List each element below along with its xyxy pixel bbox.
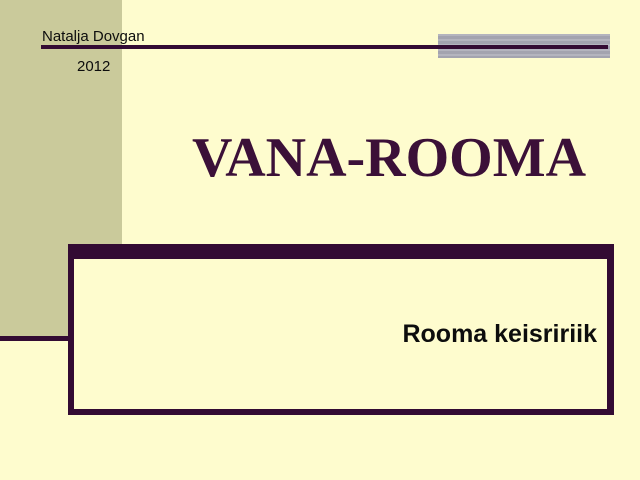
slide-canvas: Natalja Dovgan 2012 VANA-ROOMA Rooma kei… bbox=[0, 0, 640, 480]
left-rule-line bbox=[0, 336, 70, 341]
slide-title: VANA-ROOMA bbox=[148, 130, 630, 186]
year-label: 2012 bbox=[77, 58, 110, 76]
subtitle-text: Rooma keisririik bbox=[402, 322, 597, 347]
subtitle-box: Rooma keisririik bbox=[68, 244, 614, 415]
author-name: Natalja Dovgan bbox=[42, 28, 145, 46]
